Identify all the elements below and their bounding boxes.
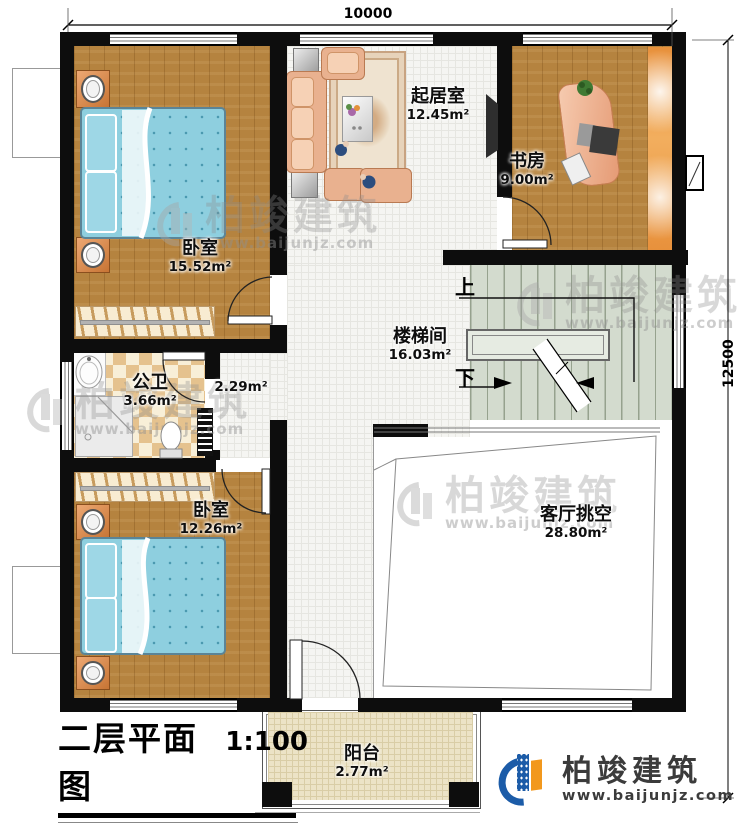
sink-counter — [74, 352, 106, 396]
nightstand — [76, 70, 110, 108]
pillow — [85, 114, 117, 172]
balcony-post-right — [449, 782, 479, 807]
wall — [443, 250, 688, 265]
brand-name: 柏竣建筑 — [562, 755, 734, 788]
pillow — [85, 171, 117, 233]
coffee-table — [342, 96, 373, 142]
window — [672, 295, 686, 388]
pillow — [85, 543, 117, 599]
wall — [433, 32, 523, 46]
hall-floor-bottom — [287, 438, 373, 698]
brand-logo-icon — [498, 750, 556, 808]
wall — [237, 698, 302, 712]
wall — [632, 698, 686, 712]
wardrobe-rod — [80, 320, 210, 325]
floor-plan: 上 下 柏竣建筑www.baijunjz.com 柏竣建筑www.baijunj… — [0, 0, 750, 826]
wardrobe-rod — [80, 486, 210, 491]
sofa-cushion — [291, 139, 314, 170]
nightstand — [76, 656, 110, 690]
dimension-width-label: 10000 — [344, 6, 393, 22]
wall — [60, 698, 110, 712]
wardrobe — [75, 306, 215, 337]
nightstand — [76, 504, 110, 540]
lamp-icon — [81, 661, 105, 685]
room-label-stair-hall: 楼梯间 16.03m² — [389, 328, 452, 363]
wall — [60, 450, 74, 712]
wall — [270, 472, 287, 698]
window — [110, 32, 237, 46]
wall — [270, 46, 287, 275]
brand-building-orange-icon — [531, 759, 542, 791]
armchair-cushion — [327, 52, 359, 74]
title-block: 二层平面图 1:100 本层建筑面积: 117.87m² 层高: 3.3m — [58, 712, 308, 826]
brand-building-blue-icon — [517, 754, 529, 791]
room-label-bathroom: 公卫 3.66m² — [123, 374, 176, 409]
lamp-icon — [81, 75, 105, 103]
brand-logo: 柏竣建筑 www.baijunjz.com — [498, 750, 734, 808]
drawing-scale: 1:100 — [225, 727, 308, 757]
sofa-cushion — [291, 107, 314, 139]
page-title: 二层平面图 — [58, 712, 211, 808]
nightstand — [76, 237, 110, 273]
window — [523, 32, 652, 46]
title-rule-thick — [58, 813, 296, 818]
window — [300, 32, 433, 46]
wall — [373, 424, 428, 437]
loveseat — [360, 168, 412, 203]
left-bay-bottom — [12, 566, 62, 654]
title-rule-thin — [58, 822, 298, 823]
window — [60, 362, 74, 450]
room-label-living-void: 客厅挑空 28.80m² — [540, 506, 612, 541]
stairs-handrail — [466, 329, 610, 361]
study-rug — [648, 47, 672, 250]
left-bay-top — [12, 68, 62, 158]
wall — [672, 388, 686, 712]
room-label-living-room: 起居室 12.45m² — [407, 88, 470, 123]
dimension-depth-label: 12500 — [721, 344, 737, 388]
wall — [60, 339, 287, 353]
wall — [358, 698, 502, 712]
stairs-down-label: 下 — [455, 362, 475, 391]
wall — [60, 32, 74, 362]
wall — [270, 420, 287, 472]
stairs-up-label: 上 — [455, 271, 475, 300]
hallway-floor — [220, 352, 270, 458]
wall — [60, 458, 216, 472]
room-label-bedroom2: 卧室 12.26m² — [180, 502, 243, 537]
room-label-balcony: 阳台 2.77m² — [335, 745, 388, 780]
wall — [205, 352, 220, 379]
brand-website: www.baijunjz.com — [562, 788, 734, 804]
wardrobe — [75, 472, 215, 502]
room-label-study: 书房 9.00m² — [500, 153, 553, 188]
room-label-hallway: 2.29m² — [214, 379, 267, 395]
pillow — [85, 597, 117, 653]
lamp-icon — [81, 242, 105, 268]
window — [502, 698, 632, 712]
side-table — [291, 171, 318, 198]
sofa-cushion — [291, 77, 314, 107]
room-label-bedroom1: 卧室 15.52m² — [169, 240, 232, 275]
window — [110, 698, 237, 712]
lamp-icon — [81, 509, 105, 535]
wall — [237, 32, 300, 46]
wall-hatch — [197, 408, 213, 456]
hallway-passage — [270, 353, 287, 420]
living-void-area — [373, 437, 673, 698]
